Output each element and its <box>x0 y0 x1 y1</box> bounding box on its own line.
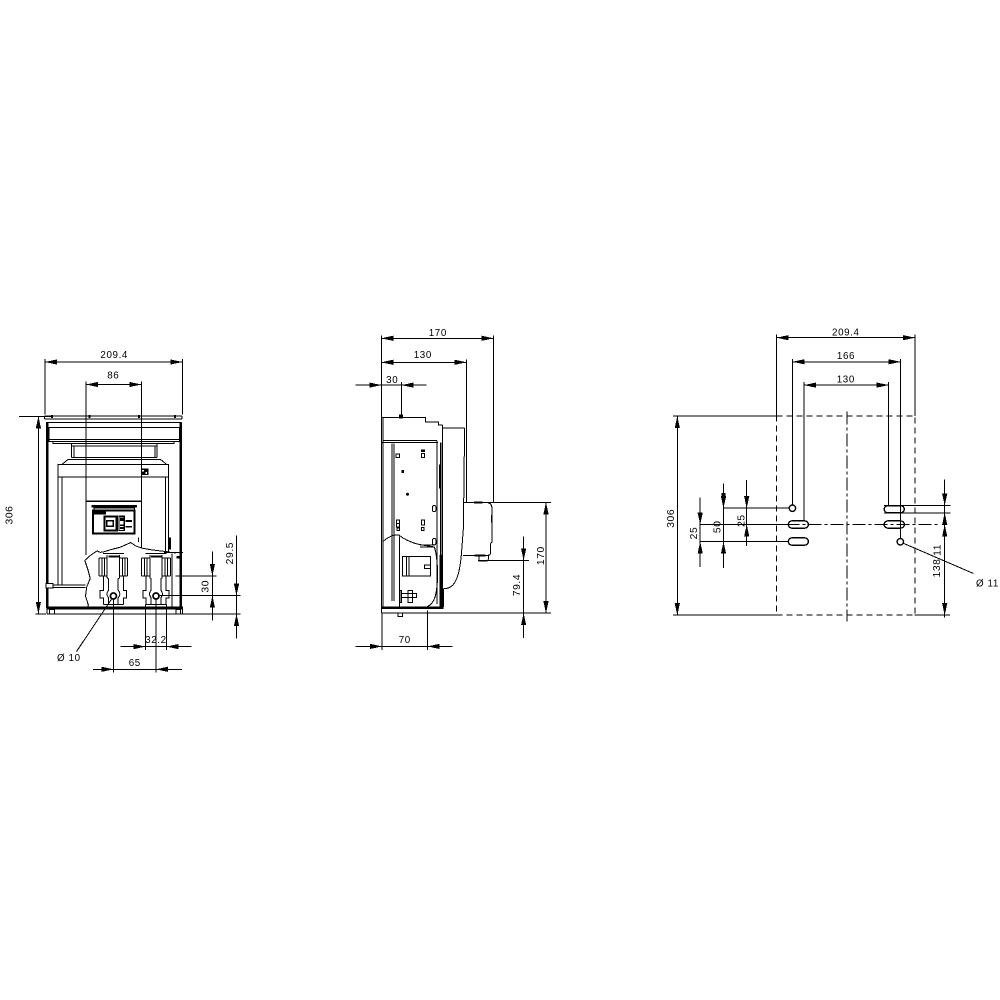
svg-text:70: 70 <box>399 635 411 646</box>
svg-text:30: 30 <box>201 580 212 593</box>
svg-text:166: 166 <box>837 351 855 362</box>
svg-text:25: 25 <box>689 527 700 540</box>
svg-text:170: 170 <box>536 546 547 565</box>
svg-text:79.4: 79.4 <box>512 574 523 596</box>
svg-text:130: 130 <box>414 350 432 361</box>
svg-text:29.5: 29.5 <box>225 542 236 564</box>
svg-text:86: 86 <box>107 371 119 382</box>
svg-text:11: 11 <box>933 544 944 556</box>
svg-text:209.4: 209.4 <box>832 327 860 338</box>
svg-text:Ø 10: Ø 10 <box>57 653 81 664</box>
svg-text:65: 65 <box>129 658 141 669</box>
svg-text:30: 30 <box>386 375 398 386</box>
svg-text:Ø 11: Ø 11 <box>976 579 999 590</box>
svg-text:306: 306 <box>5 506 16 525</box>
svg-text:170: 170 <box>429 328 447 339</box>
svg-text:25: 25 <box>737 514 748 527</box>
svg-text:130: 130 <box>837 375 855 386</box>
svg-text:209.4: 209.4 <box>100 350 128 361</box>
svg-text:306: 306 <box>666 509 677 528</box>
svg-text:138: 138 <box>932 559 943 578</box>
svg-text:50: 50 <box>713 520 724 533</box>
